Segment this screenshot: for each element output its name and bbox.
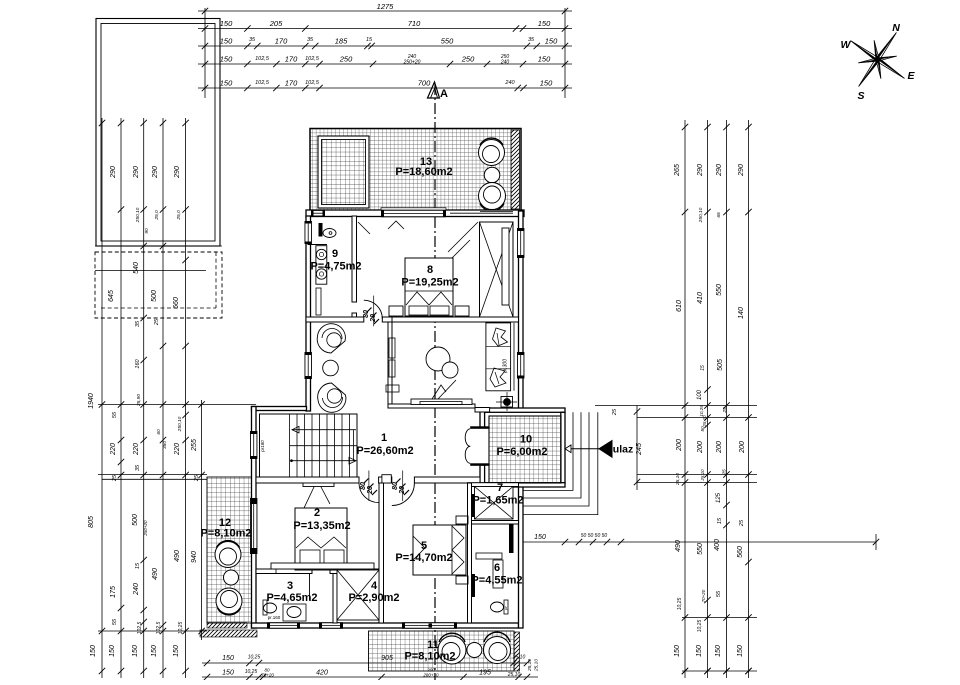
svg-text:A: A [440, 88, 448, 100]
svg-text:410: 410 [697, 292, 704, 304]
svg-text:15: 15 [717, 517, 723, 524]
svg-text:250,10: 250,10 [698, 207, 704, 223]
svg-text:55: 55 [112, 411, 118, 418]
svg-text:290: 290 [174, 166, 181, 179]
svg-text:P=18,60m2: P=18,60m2 [395, 166, 452, 178]
svg-text:710: 710 [408, 19, 421, 28]
svg-text:150: 150 [534, 534, 546, 541]
svg-text:2: 2 [314, 507, 320, 519]
svg-text:25,90: 25,90 [136, 394, 142, 407]
svg-text:150: 150 [538, 19, 551, 28]
svg-text:350: 350 [162, 441, 168, 449]
svg-text:ulaz: ulaz [613, 444, 633, 456]
svg-text:150: 150 [545, 37, 558, 46]
svg-text:550: 550 [697, 543, 704, 555]
svg-text:500: 500 [151, 290, 158, 302]
svg-text:55: 55 [716, 590, 722, 597]
svg-text:100: 100 [697, 389, 703, 400]
svg-text:150: 150 [220, 79, 233, 88]
svg-text:10: 10 [520, 434, 532, 446]
svg-text:P=2,90m2: P=2,90m2 [348, 592, 399, 604]
svg-text:60: 60 [156, 429, 162, 435]
svg-text:250: 250 [461, 55, 475, 64]
svg-text:245: 245 [636, 443, 643, 456]
svg-text:150: 150 [222, 670, 234, 677]
svg-text:280+10: 280+10 [422, 673, 439, 678]
svg-text:220: 220 [174, 443, 181, 456]
svg-text:1: 1 [381, 432, 387, 444]
svg-text:55: 55 [112, 618, 118, 625]
svg-text:200: 200 [716, 441, 723, 454]
svg-text:645: 645 [108, 290, 115, 302]
svg-text:550: 550 [441, 37, 454, 46]
svg-text:1275: 1275 [377, 2, 395, 11]
svg-text:150: 150 [173, 645, 180, 657]
svg-text:25,10: 25,10 [507, 672, 521, 678]
svg-text:15: 15 [366, 37, 373, 43]
svg-text:10,25: 10,25 [697, 620, 703, 633]
svg-text:25: 25 [739, 519, 745, 527]
svg-text:150: 150 [540, 79, 553, 88]
svg-text:250+20: 250+20 [143, 520, 148, 537]
svg-text:150: 150 [674, 645, 681, 657]
svg-text:150: 150 [737, 645, 744, 657]
svg-text:290: 290 [716, 164, 723, 177]
svg-text:11: 11 [427, 639, 439, 651]
svg-text:102,5: 102,5 [255, 56, 270, 62]
svg-text:25,10: 25,10 [702, 415, 707, 428]
svg-text:290: 290 [133, 166, 140, 179]
svg-text:150: 150 [220, 55, 233, 64]
svg-text:E: E [907, 70, 915, 82]
svg-text:pr180: pr180 [260, 440, 265, 453]
svg-text:660: 660 [173, 297, 180, 309]
svg-text:150: 150 [222, 655, 234, 662]
svg-text:250+20: 250+20 [403, 60, 421, 66]
svg-text:240: 240 [504, 80, 515, 86]
svg-text:7: 7 [497, 482, 503, 494]
svg-text:940: 940 [191, 551, 198, 563]
svg-text:540: 540 [133, 262, 140, 274]
svg-text:P=1,65m2: P=1,65m2 [472, 495, 523, 507]
svg-text:185: 185 [335, 37, 348, 46]
svg-text:90: 90 [144, 228, 150, 234]
svg-text:P=4,75m2: P=4,75m2 [310, 261, 361, 273]
svg-text:P=6,00m2: P=6,00m2 [496, 446, 547, 458]
svg-text:560: 560 [737, 546, 744, 558]
svg-text:P=14,70m2: P=14,70m2 [395, 552, 452, 564]
svg-text:250,10: 250,10 [177, 416, 183, 432]
svg-text:170: 170 [275, 37, 288, 46]
svg-text:170: 170 [285, 79, 298, 88]
svg-text:150: 150 [696, 645, 703, 657]
svg-text:25: 25 [722, 407, 728, 414]
svg-text:240: 240 [133, 583, 140, 596]
svg-text:500: 500 [132, 514, 139, 526]
svg-text:3: 3 [287, 580, 293, 592]
svg-text:,70+20: ,70+20 [260, 673, 274, 678]
svg-text:35: 35 [307, 37, 314, 43]
svg-text:200: 200 [676, 439, 683, 452]
svg-text:250: 250 [339, 55, 353, 64]
svg-text:265: 265 [674, 164, 681, 177]
svg-text:490: 490 [152, 568, 159, 580]
svg-text:10,25: 10,25 [178, 622, 184, 635]
svg-text:420: 420 [316, 670, 328, 677]
svg-text:pr.300: pr.300 [503, 359, 509, 374]
svg-text:200: 200 [697, 441, 704, 454]
svg-text:290: 290 [697, 164, 704, 177]
svg-text:S: S [857, 90, 864, 102]
svg-text:25,10: 25,10 [527, 659, 533, 672]
svg-text:25,10: 25,10 [534, 659, 540, 672]
svg-text:P=26,60m2: P=26,60m2 [356, 445, 413, 457]
svg-text:15: 15 [135, 562, 141, 569]
svg-text:P=4,55m2: P=4,55m2 [471, 575, 522, 587]
svg-text:25: 25 [154, 318, 160, 326]
svg-text:5: 5 [421, 540, 427, 552]
svg-text:N: N [892, 22, 900, 34]
svg-text:490: 490 [174, 550, 181, 562]
svg-text:P=4,65m2: P=4,65m2 [266, 592, 317, 604]
svg-text:35: 35 [249, 37, 256, 43]
svg-text:240: 240 [500, 60, 510, 66]
svg-text:700: 700 [418, 79, 431, 88]
svg-text:610: 610 [676, 300, 683, 312]
svg-text:150: 150 [90, 645, 97, 657]
svg-text:8: 8 [427, 264, 433, 276]
svg-text:35: 35 [528, 37, 535, 43]
svg-text:102,5: 102,5 [255, 80, 270, 86]
svg-text:550: 550 [716, 284, 723, 296]
svg-text:P=8,10m2: P=8,10m2 [200, 528, 251, 540]
svg-text:25,10: 25,10 [700, 469, 705, 482]
svg-text:102,5: 102,5 [156, 622, 162, 635]
svg-text:102,5: 102,5 [137, 622, 143, 635]
svg-text:102,5: 102,5 [305, 80, 320, 86]
svg-text:pr: pr [503, 606, 508, 611]
svg-text:200: 200 [739, 441, 746, 454]
svg-text:65: 65 [716, 212, 722, 218]
svg-text:15: 15 [700, 365, 706, 371]
svg-text:150: 150 [715, 645, 722, 657]
svg-text:150: 150 [220, 37, 233, 46]
svg-text:9: 9 [332, 248, 338, 260]
svg-text:W: W [841, 39, 852, 51]
svg-text:160: 160 [135, 358, 141, 368]
svg-text:140: 140 [738, 307, 745, 319]
svg-text:6: 6 [494, 562, 500, 574]
svg-text:pr.160: pr.160 [268, 615, 281, 620]
svg-text:10,25: 10,25 [245, 669, 258, 675]
svg-text:170: 170 [285, 55, 298, 64]
svg-text:35: 35 [135, 320, 141, 327]
svg-text:25,0: 25,0 [176, 210, 182, 221]
svg-text:150: 150 [538, 55, 551, 64]
svg-text:P=19,25m2: P=19,25m2 [401, 277, 458, 289]
svg-text:10,25: 10,25 [248, 655, 261, 661]
svg-text:125: 125 [716, 492, 722, 503]
svg-text:70+20: 70+20 [701, 589, 706, 602]
svg-text:150: 150 [220, 19, 233, 28]
svg-text:4: 4 [371, 580, 378, 592]
svg-text:25: 25 [612, 408, 618, 416]
svg-text:805: 805 [88, 516, 95, 528]
svg-text:220: 220 [110, 443, 117, 456]
svg-text:P=8,10m2: P=8,10m2 [404, 651, 455, 663]
svg-text:150: 150 [132, 645, 139, 657]
svg-text:25,0: 25,0 [154, 210, 160, 221]
svg-text:205: 205 [269, 19, 283, 28]
svg-text:25: 25 [112, 474, 118, 482]
svg-text:290: 290 [738, 164, 745, 177]
svg-text:80: 80 [363, 310, 370, 318]
svg-text:10,25: 10,25 [677, 598, 683, 611]
svg-text:220: 220 [133, 443, 140, 456]
svg-text:255: 255 [191, 439, 198, 452]
svg-text:400: 400 [714, 539, 721, 551]
svg-text:50 50 50 50: 50 50 50 50 [581, 533, 608, 539]
svg-text:175: 175 [110, 586, 117, 598]
svg-text:P=13,35m2: P=13,35m2 [293, 520, 350, 532]
svg-text:505: 505 [717, 359, 724, 371]
svg-text:25: 25 [194, 474, 200, 482]
svg-text:150: 150 [109, 645, 116, 657]
svg-text:250,10: 250,10 [135, 207, 141, 223]
svg-text:50: 50 [700, 426, 706, 432]
svg-text:10,25: 10,25 [699, 405, 704, 417]
svg-text:150: 150 [151, 645, 158, 657]
svg-text:102,5: 102,5 [305, 56, 320, 62]
svg-text:1940: 1940 [88, 393, 95, 409]
svg-text:35: 35 [135, 464, 141, 471]
svg-text:290: 290 [110, 166, 117, 179]
svg-text:290: 290 [152, 166, 159, 179]
